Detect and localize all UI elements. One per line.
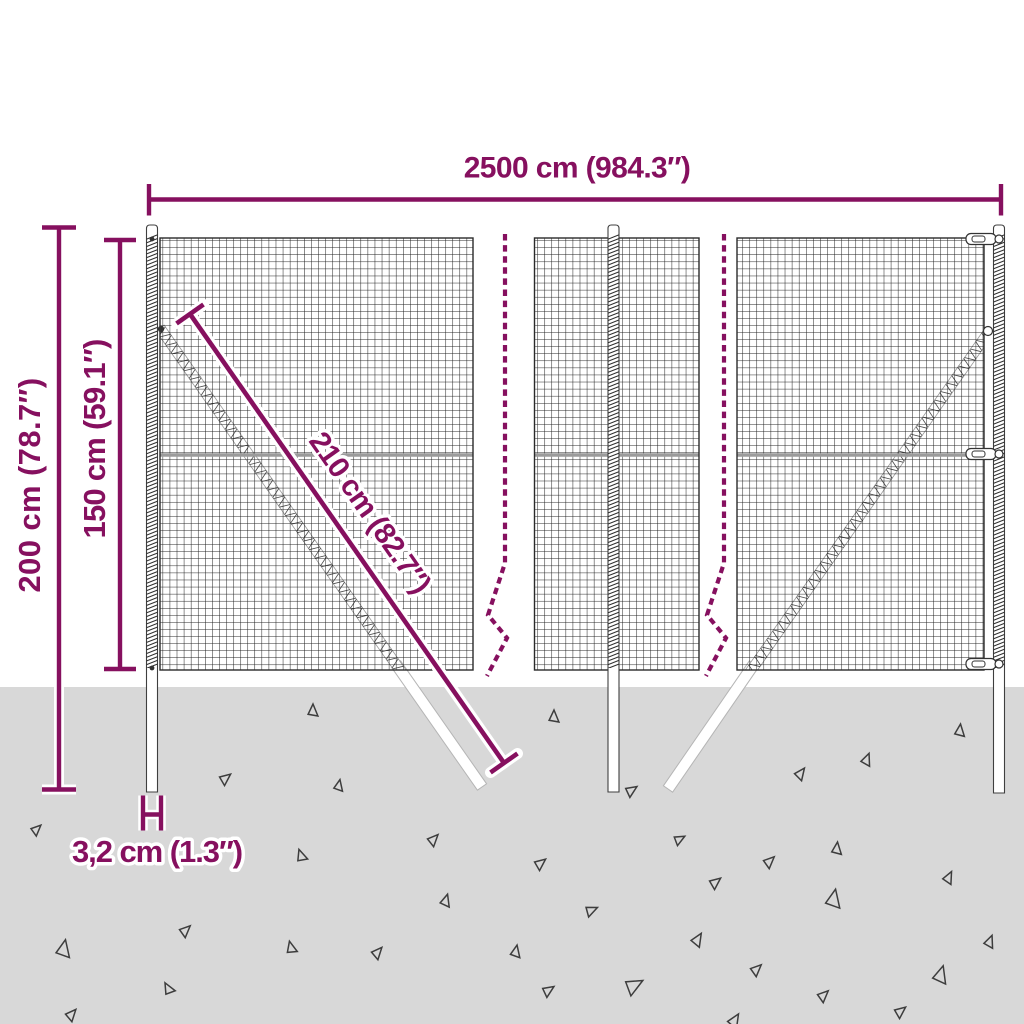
svg-text:150 cm (59.1″): 150 cm (59.1″) bbox=[77, 339, 112, 538]
svg-text:2500 cm (984.3″): 2500 cm (984.3″) bbox=[464, 152, 691, 185]
svg-text:3,2 cm (1.3″): 3,2 cm (1.3″) bbox=[72, 834, 242, 869]
svg-text:200 cm (78.7″): 200 cm (78.7″) bbox=[12, 377, 47, 592]
